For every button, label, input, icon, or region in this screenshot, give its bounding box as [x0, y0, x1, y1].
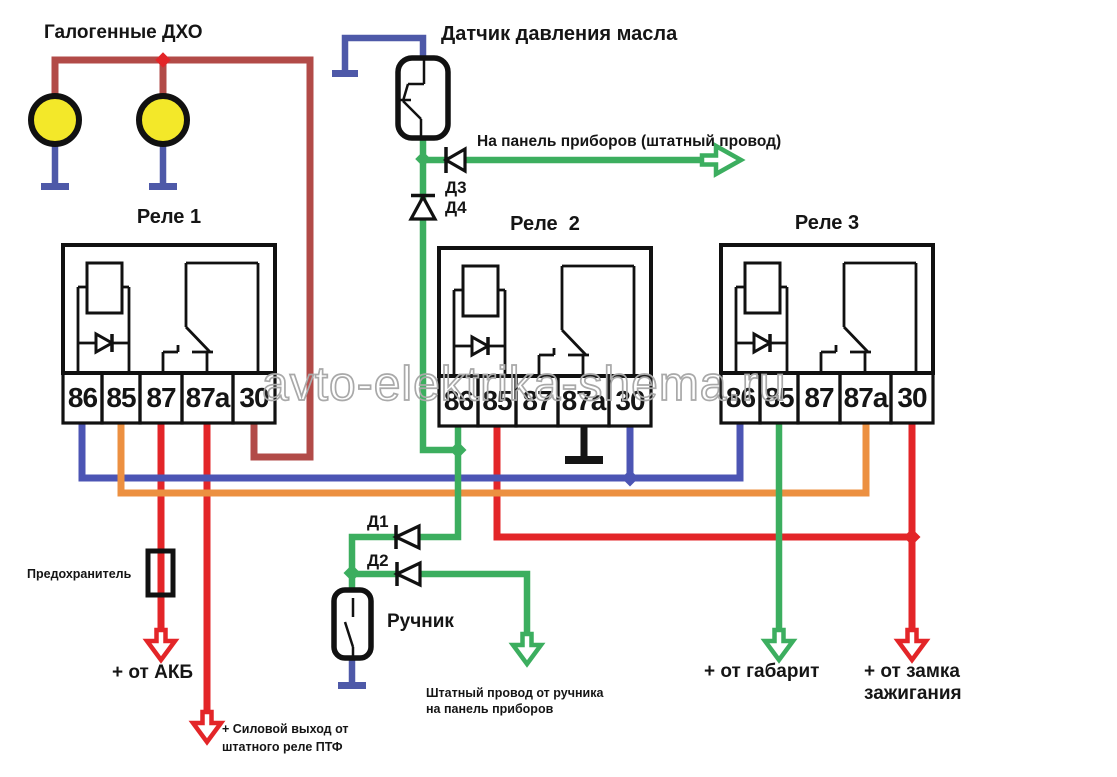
handbrake-switch: [334, 590, 371, 658]
d2-label: Д2: [367, 551, 389, 571]
relay2-ground: [565, 426, 603, 460]
ptf-label-line2: штатного реле ПТФ: [222, 739, 349, 757]
handbrake-label: Ручник: [387, 611, 454, 633]
hb-panel-label-line1: Штатный провод от ручника: [426, 686, 603, 702]
ptf-label: + Силовой выход от штатного реле ПТФ: [222, 721, 349, 757]
relay1-pin-86: 86: [63, 373, 102, 423]
akb-label: + от АКБ: [112, 662, 193, 684]
arrow-akb: [147, 630, 175, 660]
lamp-right: [139, 96, 187, 144]
drl-label: Галогенные ДХО: [44, 22, 203, 44]
hb-panel-label: Штатный провод от ручника на панель приб…: [426, 686, 603, 717]
relay3-pin-87a: 87а: [840, 373, 891, 423]
relay1-pin-85: 85: [102, 373, 140, 423]
wiring-diagram: Галогенные ДХО Датчик давления масла На …: [0, 0, 1117, 777]
d1-label: Д1: [367, 512, 389, 532]
arrow-gabarit: [765, 630, 793, 660]
arrow-hb-panel: [513, 634, 541, 664]
relay1-pin-87: 87: [140, 373, 182, 423]
relay3-pin-30: 30: [891, 373, 933, 423]
hb-panel-label-line2: на панель приборов: [426, 702, 603, 718]
oil-pressure-sensor: [398, 58, 448, 138]
ignition-label-line1: + от замка: [864, 661, 962, 683]
diode-d4: [411, 196, 435, 220]
oil-sensor-label: Датчик давления масла: [441, 23, 677, 46]
blue-bus: [82, 423, 740, 478]
ignition-label: + от замка зажигания: [864, 661, 962, 705]
ptf-label-line1: + Силовой выход от: [222, 721, 349, 739]
fuse-label: Предохранитель: [27, 566, 131, 584]
relay1-pin-87a: 87а: [182, 373, 233, 423]
relay3-title: Реле 3: [721, 212, 933, 235]
junction-dots: [155, 52, 920, 581]
diode-d3: [446, 147, 465, 173]
relay1-title: Реле 1: [63, 206, 275, 229]
gabarit-label: + от габарит: [704, 661, 819, 683]
d3-label: Д3: [445, 178, 467, 198]
arrow-ptf: [193, 712, 221, 742]
arrow-ignition: [898, 630, 926, 660]
ignition-label-line2: зажигания: [864, 683, 962, 705]
to-panel-label: На панель приборов (штатный провод): [477, 133, 781, 151]
drl-lamps: [31, 96, 187, 144]
watermark: avto-elektrika-shema.ru: [262, 357, 787, 412]
diode-d1: [396, 525, 419, 549]
relay3-pin-87: 87: [798, 373, 840, 423]
diode-d2: [397, 562, 420, 586]
relay2-title: Реле 2: [439, 213, 651, 236]
lamp-left: [31, 96, 79, 144]
